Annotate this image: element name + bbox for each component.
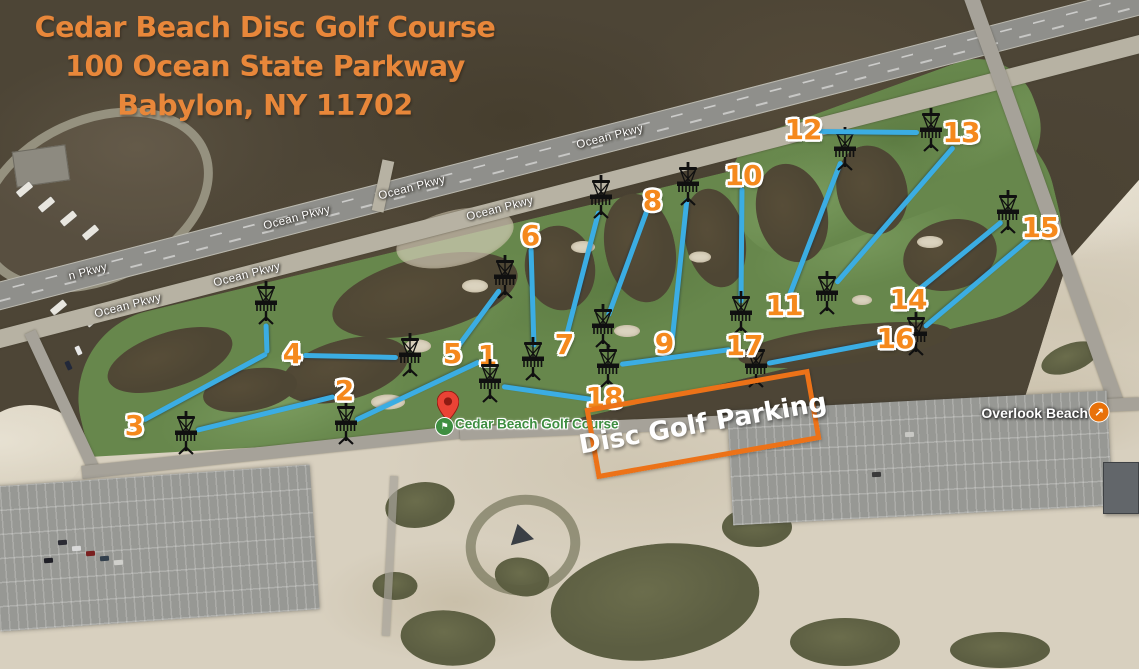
hole-10-line (739, 187, 745, 303)
hole-3-line (142, 351, 268, 422)
hole-2-label: 2 (335, 377, 353, 405)
hole-18-line (502, 384, 593, 402)
hole-17-line (620, 347, 732, 367)
title-line-2: 100 Ocean State Parkway (0, 47, 540, 86)
road-label: Ocean Pkwy (377, 174, 446, 203)
disc-golf-basket-icon (172, 411, 200, 455)
hole-2-line (195, 394, 335, 433)
hole-3-label: 3 (125, 412, 143, 440)
hole-6-line (529, 247, 537, 347)
road-label: n Pkwy (67, 261, 108, 282)
hole-7-label: 7 (555, 331, 573, 359)
map-canvas: 123456789101112131415161718n PkwyOcean P… (0, 0, 1139, 669)
hole-8-line (606, 209, 650, 317)
beach-poi-icon: ↗ (1089, 402, 1110, 423)
hole-5-label: 5 (443, 340, 461, 368)
hole-8-label: 8 (643, 187, 661, 215)
road-label: Ocean Pkwy (262, 204, 331, 233)
golf-poi-icon: ⚑ (435, 417, 454, 436)
hole-12-line (816, 129, 919, 135)
hole-12-label: 12 (785, 116, 822, 144)
title-line-1: Cedar Beach Disc Golf Course (0, 8, 540, 47)
hole-14-label: 14 (890, 286, 927, 314)
hole-17-label: 17 (726, 332, 763, 360)
page-title: Cedar Beach Disc Golf Course 100 Ocean S… (0, 8, 540, 125)
hole-6-label: 6 (521, 222, 539, 250)
disc-golf-basket-icon (332, 401, 360, 445)
disc-golf-basket-icon (589, 304, 617, 348)
disc-golf-basket-icon (476, 359, 504, 403)
hole-16-label: 16 (877, 325, 914, 353)
hole-15-line (922, 234, 1033, 329)
hole-4-label: 4 (283, 340, 301, 368)
overlook-beach-label: Overlook Beach (981, 405, 1088, 421)
road-label: Ocean Pkwy (93, 292, 162, 321)
disc-golf-basket-icon (994, 190, 1022, 234)
hole-11-label: 11 (766, 292, 803, 320)
disc-golf-basket-icon (813, 271, 841, 315)
hole-4-line (303, 353, 398, 360)
disc-golf-basket-icon (674, 162, 702, 206)
hole-13-label: 13 (943, 119, 980, 147)
disc-golf-basket-icon (519, 337, 547, 381)
disc-golf-basket-icon (587, 175, 615, 219)
disc-golf-basket-icon (491, 255, 519, 299)
hole-9-label: 9 (655, 330, 673, 358)
hole-10-label: 10 (725, 162, 762, 190)
hole-15-label: 15 (1022, 214, 1059, 242)
hole-3-line (264, 323, 270, 353)
disc-golf-basket-icon (252, 281, 280, 325)
disc-golf-basket-icon (917, 108, 945, 152)
disc-golf-basket-icon (396, 333, 424, 377)
hole-16-line (767, 339, 884, 366)
road-label: Ocean Pkwy (575, 123, 644, 152)
title-line-3: Babylon, NY 11702 (0, 86, 540, 125)
